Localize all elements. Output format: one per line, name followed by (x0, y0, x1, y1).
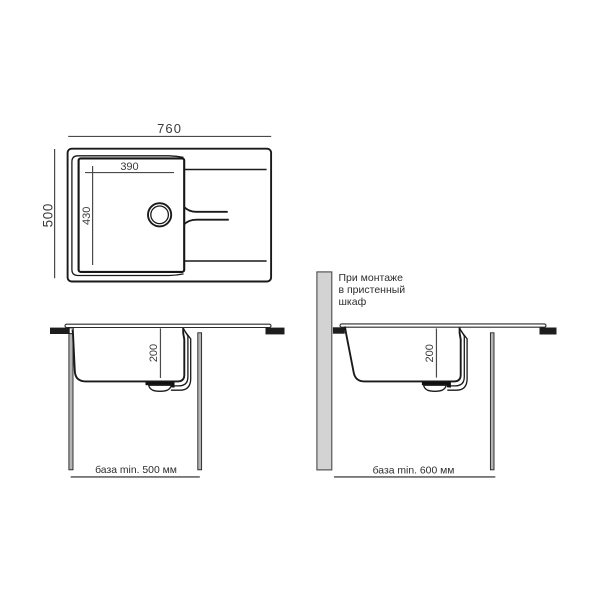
svg-text:200: 200 (424, 344, 436, 362)
svg-text:база min. 500 мм: база min. 500 мм (95, 464, 177, 476)
svg-text:390: 390 (120, 161, 138, 173)
svg-text:200: 200 (148, 344, 160, 362)
svg-text:500: 500 (40, 203, 55, 227)
svg-text:При монтаже: При монтаже (339, 272, 404, 284)
svg-text:в пристенный: в пристенный (339, 284, 406, 296)
svg-text:430: 430 (81, 207, 93, 225)
svg-text:760: 760 (157, 121, 182, 136)
svg-text:база min. 600 мм: база min. 600 мм (373, 464, 455, 476)
svg-text:шкаф: шкаф (339, 296, 367, 308)
